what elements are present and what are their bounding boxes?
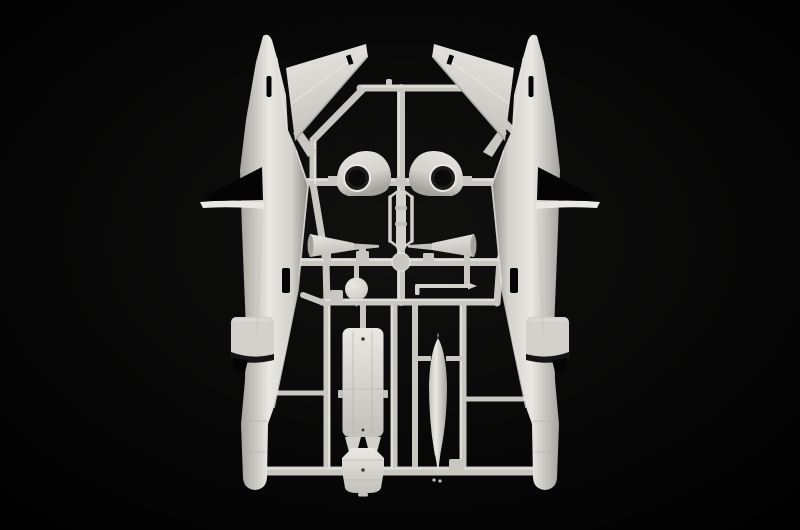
sprue-photo — [0, 0, 800, 530]
panel-gate-stub — [360, 302, 366, 330]
rod-post-right — [464, 252, 470, 285]
sprue-block — [330, 290, 343, 303]
photo-canvas — [0, 0, 800, 530]
sprue-foot-block — [449, 459, 464, 471]
sprue-gate-stub — [386, 79, 392, 90]
belly-panel-part — [338, 328, 388, 452]
runner-junction — [395, 176, 407, 188]
hatch-panel-part — [342, 448, 384, 497]
